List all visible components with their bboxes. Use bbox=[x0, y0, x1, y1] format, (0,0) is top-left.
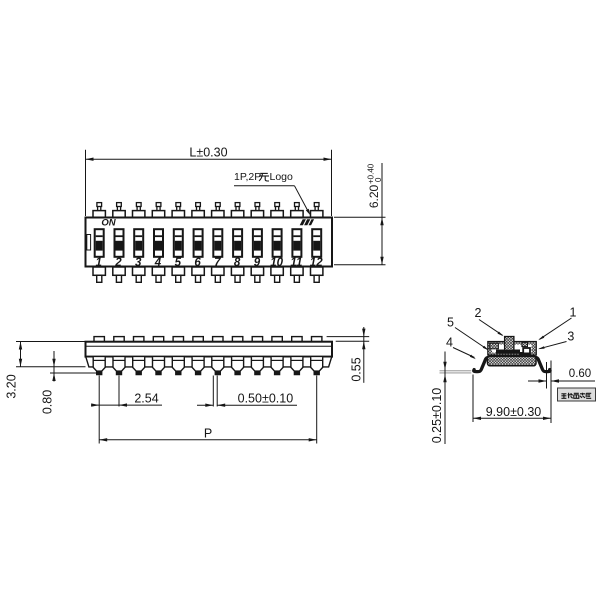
svg-text:5: 5 bbox=[175, 257, 182, 269]
svg-text:0.25±0.10: 0.25±0.10 bbox=[430, 388, 444, 444]
svg-text:1: 1 bbox=[570, 306, 577, 320]
svg-text:7: 7 bbox=[214, 257, 221, 269]
svg-text:0.60: 0.60 bbox=[569, 368, 591, 380]
svg-text:3: 3 bbox=[135, 257, 142, 269]
svg-text:Logo: Logo bbox=[270, 171, 294, 183]
svg-text:6: 6 bbox=[194, 257, 201, 269]
svg-text:5: 5 bbox=[447, 316, 454, 330]
svg-text:4: 4 bbox=[446, 335, 453, 349]
svg-text:0.80: 0.80 bbox=[41, 390, 55, 414]
svg-text:9.90±0.30: 9.90±0.30 bbox=[486, 405, 542, 419]
svg-text:1: 1 bbox=[95, 257, 101, 269]
svg-text:1P,2P: 1P,2P bbox=[234, 171, 261, 183]
svg-text:3.20: 3.20 bbox=[5, 374, 19, 398]
svg-text:P: P bbox=[204, 426, 212, 440]
svg-text:12: 12 bbox=[310, 257, 323, 269]
svg-text:0.50±0.10: 0.50±0.10 bbox=[238, 391, 294, 405]
svg-text:4: 4 bbox=[154, 257, 162, 269]
svg-text:11: 11 bbox=[290, 257, 302, 269]
svg-text:10: 10 bbox=[270, 257, 283, 269]
svg-text:8: 8 bbox=[234, 257, 241, 269]
svg-text:6.20: 6.20 bbox=[367, 184, 381, 208]
svg-text:ON: ON bbox=[101, 218, 116, 229]
svg-text:3: 3 bbox=[567, 330, 574, 344]
svg-text:2: 2 bbox=[114, 257, 122, 269]
svg-text:L±0.30: L±0.30 bbox=[189, 146, 227, 160]
svg-text:0: 0 bbox=[374, 177, 383, 182]
svg-text:9: 9 bbox=[254, 257, 261, 269]
svg-text:0.55: 0.55 bbox=[350, 357, 364, 381]
svg-text:2: 2 bbox=[475, 306, 482, 320]
svg-text:2.54: 2.54 bbox=[134, 391, 158, 405]
